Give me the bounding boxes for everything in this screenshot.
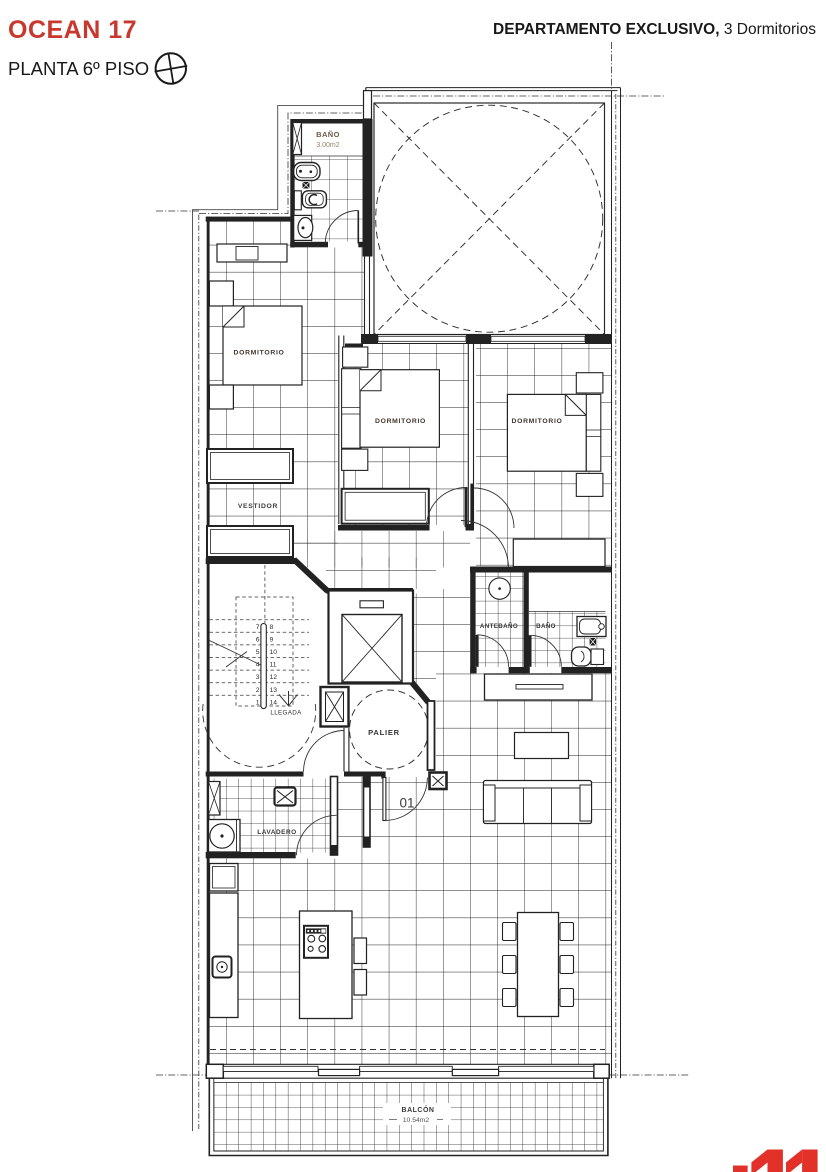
- svg-text:7: 7: [256, 624, 260, 631]
- svg-text:10.54m2: 10.54m2: [403, 1117, 430, 1124]
- svg-text:BALCÓN: BALCÓN: [402, 1105, 435, 1114]
- svg-text:DEPARTAMENTO EXCLUSIVO, 3 Dorm: DEPARTAMENTO EXCLUSIVO, 3 Dormitorios: [493, 21, 816, 38]
- svg-text:6: 6: [256, 636, 260, 643]
- svg-text:DORMITORIO: DORMITORIO: [375, 418, 426, 425]
- svg-text:11: 11: [270, 662, 277, 669]
- svg-text:BAÑO: BAÑO: [316, 130, 340, 139]
- svg-text:3.00m2: 3.00m2: [316, 142, 339, 149]
- svg-text:8: 8: [270, 624, 274, 631]
- svg-text:1: 1: [256, 699, 260, 706]
- svg-text:5: 5: [256, 649, 260, 656]
- svg-text:4: 4: [256, 662, 260, 669]
- svg-text:BAÑO: BAÑO: [536, 623, 556, 630]
- svg-text:9: 9: [270, 636, 274, 643]
- svg-text:ANTEBAÑO: ANTEBAÑO: [480, 623, 518, 630]
- svg-text:OCEAN 17: OCEAN 17: [8, 16, 137, 44]
- svg-text:13: 13: [270, 687, 278, 694]
- svg-text:PLANTA 6º PISO: PLANTA 6º PISO: [8, 58, 149, 79]
- svg-text:3: 3: [256, 674, 260, 681]
- svg-text:DORMITORIO: DORMITORIO: [233, 350, 284, 357]
- svg-text:LAVADERO: LAVADERO: [257, 829, 297, 836]
- svg-text:LLEGADA: LLEGADA: [270, 710, 302, 717]
- svg-text:PALIER: PALIER: [368, 728, 400, 737]
- svg-text:10: 10: [270, 649, 278, 656]
- svg-text:2: 2: [256, 687, 260, 694]
- svg-text:01: 01: [399, 796, 414, 811]
- svg-text:VESTIDOR: VESTIDOR: [238, 503, 278, 510]
- svg-text:DORMITORIO: DORMITORIO: [511, 418, 562, 425]
- svg-text:14: 14: [270, 699, 278, 706]
- svg-text:12: 12: [270, 674, 278, 681]
